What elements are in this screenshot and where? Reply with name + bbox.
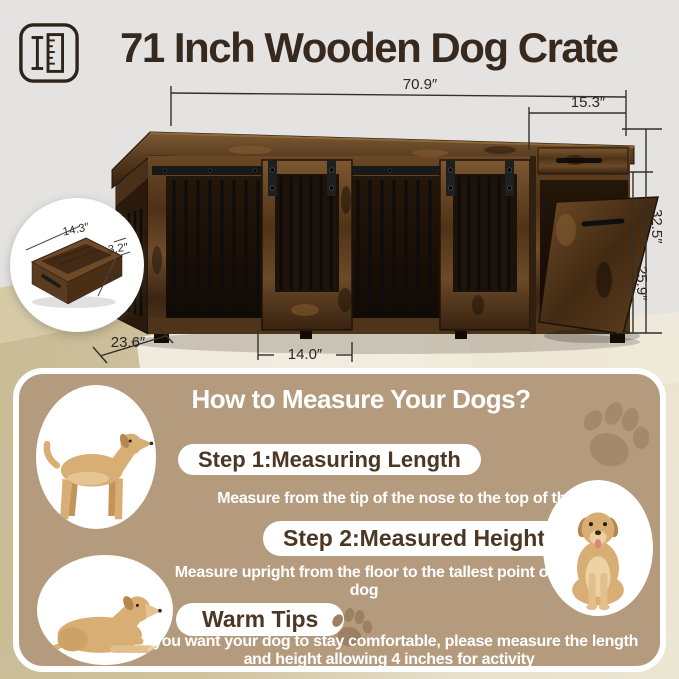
dim-label-total-width: 70.9″ — [385, 76, 455, 93]
dim-label-door-height: 25.9″ — [633, 266, 650, 301]
lying-dog-illustration — [41, 579, 169, 665]
dim-label-depth: 23.6″ — [93, 334, 163, 351]
standing-dog-illustration — [38, 423, 154, 529]
guide-title: How to Measure Your Dogs? — [161, 384, 561, 415]
measure-guide-panel: How to Measure Your Dogs? — [13, 368, 666, 672]
warm-tips-description: If you want your dog to stay comfortable… — [129, 633, 649, 670]
dog-photo-sitting — [543, 480, 653, 616]
step2-description: Measure upright from the floor to the ta… — [164, 564, 564, 601]
paw-print-icon — [567, 380, 665, 482]
step2-pill: Step 2:Measured Height — [263, 521, 565, 556]
sitting-dog-illustration — [555, 498, 641, 616]
ruler-measure-icon — [18, 22, 80, 84]
dog-photo-lying — [37, 555, 173, 665]
product-infographic: 70.9″ 15.3″ 32.5″ 25.9″ 14.0″ 23.6″ 14.3… — [0, 0, 679, 679]
product-title: 71 Inch Wooden Dog Crate — [120, 24, 618, 72]
dim-label-door-width: 14.0″ — [270, 346, 340, 363]
warm-tips-pill: Warm Tips — [176, 603, 344, 636]
step1-pill: Step 1:Measuring Length — [178, 444, 481, 475]
dim-label-side-width: 15.3″ — [553, 94, 623, 111]
dim-label-total-height: 32.5″ — [648, 209, 665, 244]
dog-photo-standing — [36, 385, 156, 529]
drawer-inset: 14.3″ 3.2″ 19″ — [10, 198, 144, 332]
